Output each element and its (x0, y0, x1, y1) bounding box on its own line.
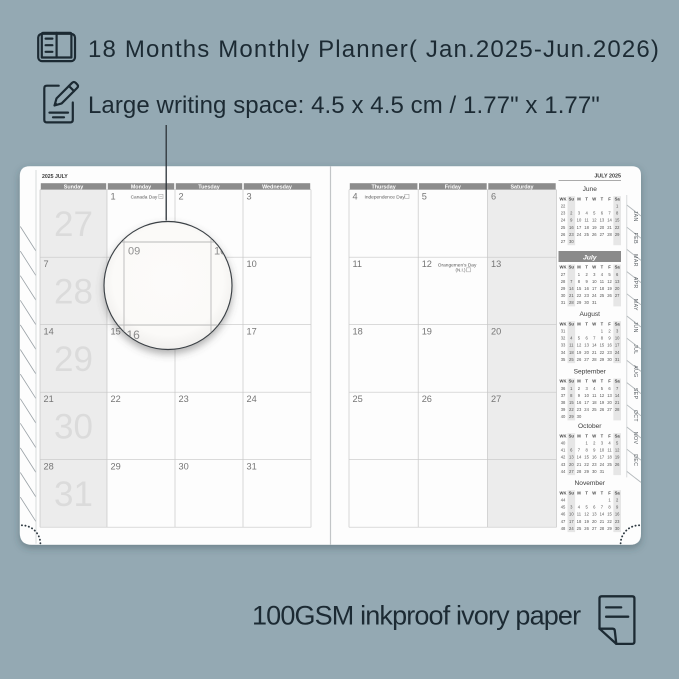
svg-text:31: 31 (561, 329, 566, 334)
svg-text:23: 23 (607, 350, 612, 355)
svg-text:25: 25 (561, 225, 566, 230)
svg-text:25: 25 (607, 462, 612, 467)
svg-text:21: 21 (592, 350, 597, 355)
svg-text:30: 30 (584, 300, 589, 305)
svg-text:15: 15 (600, 343, 605, 348)
svg-text:12: 12 (592, 218, 597, 223)
svg-text:14: 14 (615, 393, 620, 398)
svg-text:26: 26 (561, 232, 566, 237)
svg-text:30: 30 (179, 462, 189, 472)
svg-text:23: 23 (179, 394, 189, 404)
svg-text:23: 23 (615, 519, 620, 524)
svg-text:20: 20 (569, 462, 574, 467)
svg-text:5: 5 (422, 192, 427, 202)
svg-text:13: 13 (569, 455, 574, 460)
svg-text:20: 20 (615, 286, 620, 291)
svg-text:30: 30 (561, 293, 566, 298)
svg-text:12: 12 (607, 279, 612, 284)
svg-text:M: M (577, 265, 581, 270)
svg-text:24: 24 (615, 350, 620, 355)
svg-text:Su: Su (569, 196, 575, 201)
svg-text:24: 24 (584, 407, 589, 412)
svg-text:21: 21 (600, 519, 605, 524)
svg-text:28: 28 (44, 462, 54, 472)
svg-text:Sa: Sa (615, 379, 621, 384)
svg-text:23: 23 (561, 211, 566, 216)
svg-text:44: 44 (561, 498, 566, 503)
svg-text:November: November (575, 480, 606, 487)
svg-text:4: 4 (353, 192, 358, 202)
svg-text:31: 31 (247, 462, 257, 472)
svg-text:36: 36 (561, 386, 566, 391)
svg-text:24: 24 (577, 232, 582, 237)
svg-text:24: 24 (247, 394, 257, 404)
svg-text:12: 12 (615, 448, 620, 453)
svg-text:24: 24 (600, 462, 605, 467)
svg-text:17: 17 (577, 225, 582, 230)
svg-text:25: 25 (592, 407, 597, 412)
svg-text:APR: APR (632, 277, 638, 289)
svg-text:SEP: SEP (632, 388, 638, 400)
svg-text:18: 18 (577, 519, 582, 524)
svg-text:20: 20 (607, 400, 612, 405)
svg-text:W: W (592, 265, 596, 270)
svg-text:29: 29 (54, 340, 93, 379)
svg-text:WK: WK (560, 490, 567, 495)
svg-text:27: 27 (491, 394, 501, 404)
svg-text:46: 46 (561, 512, 566, 517)
svg-text:15: 15 (584, 455, 589, 460)
svg-text:JUN: JUN (632, 321, 638, 332)
svg-text:44: 44 (561, 469, 566, 474)
svg-text:11: 11 (600, 279, 605, 284)
svg-text:October: October (578, 423, 602, 430)
svg-text:M: M (577, 379, 581, 384)
svg-text:22: 22 (607, 519, 612, 524)
svg-text:JUL: JUL (632, 344, 638, 354)
svg-text:25: 25 (577, 526, 582, 531)
svg-text:2: 2 (179, 192, 184, 202)
svg-text:16: 16 (584, 286, 589, 291)
svg-text:18: 18 (607, 455, 612, 460)
svg-text:21: 21 (615, 400, 620, 405)
svg-text:WK: WK (560, 265, 567, 270)
svg-text:31: 31 (615, 357, 620, 362)
svg-text:29: 29 (569, 414, 574, 419)
svg-text:27: 27 (561, 272, 566, 277)
svg-text:20: 20 (584, 350, 589, 355)
svg-text:29: 29 (111, 462, 121, 472)
svg-text:MAR: MAR (632, 254, 638, 267)
svg-text:40: 40 (561, 441, 566, 446)
svg-text:11: 11 (353, 259, 363, 269)
svg-text:25: 25 (584, 232, 589, 237)
svg-text:27: 27 (600, 232, 605, 237)
svg-text:29: 29 (615, 232, 620, 237)
svg-text:12: 12 (584, 512, 589, 517)
svg-text:34: 34 (561, 350, 566, 355)
svg-text:30: 30 (569, 239, 574, 244)
svg-text:26: 26 (584, 526, 589, 531)
svg-text:15: 15 (607, 512, 612, 517)
svg-text:22: 22 (615, 225, 620, 230)
svg-text:June: June (583, 186, 598, 193)
svg-text:17: 17 (600, 455, 605, 460)
svg-text:(N.I.): (N.I.) (456, 268, 466, 273)
svg-text:21: 21 (44, 394, 54, 404)
svg-text:35: 35 (561, 357, 566, 362)
svg-text:22: 22 (569, 407, 574, 412)
svg-text:17: 17 (592, 286, 597, 291)
svg-text:43: 43 (561, 462, 566, 467)
svg-text:27: 27 (607, 407, 612, 412)
svg-text:WK: WK (560, 379, 567, 384)
svg-text:18: 18 (600, 286, 605, 291)
svg-text:28: 28 (561, 279, 566, 284)
svg-text:13: 13 (584, 343, 589, 348)
svg-text:22: 22 (561, 204, 566, 209)
svg-text:W: W (592, 379, 596, 384)
svg-text:July: July (583, 254, 598, 261)
svg-text:28: 28 (615, 407, 620, 412)
svg-text:15: 15 (111, 327, 121, 337)
svg-text:22: 22 (577, 293, 582, 298)
svg-text:30: 30 (577, 414, 582, 419)
svg-text:WK: WK (560, 433, 567, 438)
svg-text:24: 24 (561, 218, 566, 223)
svg-text:14: 14 (592, 343, 597, 348)
svg-text:W: W (592, 196, 596, 201)
svg-text:29: 29 (584, 469, 589, 474)
svg-text:28: 28 (600, 526, 605, 531)
svg-text:14: 14 (577, 455, 582, 460)
svg-text:10: 10 (600, 448, 605, 453)
svg-text:WK: WK (560, 196, 567, 201)
svg-text:17: 17 (584, 400, 589, 405)
svg-text:32: 32 (561, 336, 566, 341)
svg-text:27: 27 (592, 526, 597, 531)
svg-text:28: 28 (592, 357, 597, 362)
svg-text:16: 16 (577, 400, 582, 405)
svg-text:Sa: Sa (615, 196, 621, 201)
svg-text:11: 11 (569, 343, 574, 348)
svg-text:28: 28 (569, 300, 574, 305)
svg-text:30: 30 (607, 357, 612, 362)
svg-text:W: W (592, 490, 596, 495)
svg-text:28: 28 (607, 232, 612, 237)
svg-text:15: 15 (615, 218, 620, 223)
svg-text:14: 14 (44, 327, 54, 337)
svg-text:18: 18 (353, 327, 363, 337)
svg-text:33: 33 (561, 343, 566, 348)
svg-text:19: 19 (615, 455, 620, 460)
svg-text:AUG: AUG (632, 365, 638, 377)
svg-text:M: M (577, 196, 581, 201)
svg-text:W: W (592, 433, 596, 438)
svg-text:28: 28 (54, 272, 93, 311)
svg-text:September: September (574, 368, 607, 375)
svg-text:20: 20 (491, 327, 501, 337)
svg-text:Canada Day: Canada Day (131, 194, 158, 200)
svg-text:14: 14 (607, 218, 612, 223)
svg-text:10: 10 (584, 393, 589, 398)
svg-text:27: 27 (54, 205, 93, 244)
svg-text:20: 20 (592, 519, 597, 524)
svg-text:16: 16 (615, 512, 620, 517)
svg-text:23: 23 (577, 407, 582, 412)
svg-text:100GSM inkproof ivory paper: 100GSM inkproof ivory paper (252, 601, 581, 631)
svg-text:39: 39 (561, 407, 566, 412)
svg-text:13: 13 (600, 218, 605, 223)
svg-text:22: 22 (584, 462, 589, 467)
svg-text:37: 37 (561, 393, 566, 398)
svg-text:31: 31 (600, 469, 605, 474)
svg-text:6: 6 (491, 192, 496, 202)
svg-text:26: 26 (422, 394, 432, 404)
svg-text:19: 19 (422, 327, 432, 337)
svg-text:Sa: Sa (615, 265, 621, 270)
svg-text:17: 17 (615, 343, 620, 348)
svg-text:27: 27 (584, 357, 589, 362)
svg-text:Independence Day: Independence Day (365, 194, 406, 200)
svg-text:7: 7 (44, 259, 49, 269)
svg-text:26: 26 (592, 232, 597, 237)
svg-text:10: 10 (577, 218, 582, 223)
svg-text:27: 27 (615, 293, 620, 298)
svg-text:12: 12 (600, 393, 605, 398)
svg-text:11: 11 (607, 448, 612, 453)
svg-text:30: 30 (615, 526, 620, 531)
svg-text:18: 18 (584, 225, 589, 230)
svg-text:29: 29 (561, 286, 566, 291)
svg-text:16: 16 (569, 225, 574, 230)
svg-text:48: 48 (561, 526, 566, 531)
svg-text:11: 11 (592, 393, 597, 398)
svg-text:26: 26 (615, 462, 620, 467)
svg-text:40: 40 (561, 414, 566, 419)
svg-text:14: 14 (600, 512, 605, 517)
svg-text:Su: Su (569, 433, 575, 438)
svg-text:42: 42 (561, 455, 566, 460)
svg-text:14: 14 (569, 286, 574, 291)
svg-text:19: 19 (592, 225, 597, 230)
svg-text:Sa: Sa (615, 490, 621, 495)
svg-text:27: 27 (561, 239, 566, 244)
svg-text:Sa: Sa (615, 433, 621, 438)
svg-text:18 Months Monthly Planner( Jan: 18 Months Monthly Planner( Jan.2025-Jun.… (88, 36, 660, 63)
svg-text:18: 18 (592, 400, 597, 405)
svg-text:26: 26 (577, 357, 582, 362)
svg-text:30: 30 (54, 407, 93, 446)
svg-text:45: 45 (561, 505, 566, 510)
svg-text:38: 38 (561, 400, 566, 405)
svg-text:19: 19 (584, 519, 589, 524)
svg-text:1: 1 (111, 192, 116, 202)
svg-text:12: 12 (422, 259, 432, 269)
svg-text:19: 19 (577, 350, 582, 355)
svg-text:JAN: JAN (632, 211, 638, 222)
svg-text:Sa: Sa (615, 321, 621, 326)
svg-text:Su: Su (569, 265, 575, 270)
svg-text:WK: WK (560, 321, 567, 326)
svg-text:MAY: MAY (632, 299, 638, 311)
svg-text:21: 21 (607, 225, 612, 230)
svg-text:11: 11 (584, 218, 589, 223)
svg-text:31: 31 (54, 475, 93, 514)
svg-text:August: August (579, 311, 600, 318)
svg-text:11: 11 (577, 512, 582, 517)
svg-text:31: 31 (592, 300, 597, 305)
svg-text:M: M (577, 490, 581, 495)
svg-text:31: 31 (561, 300, 566, 305)
svg-text:W: W (592, 321, 596, 326)
svg-text:23: 23 (569, 232, 574, 237)
svg-text:Large writing space: 4.5 x 4.5: Large writing space: 4.5 x 4.5 cm / 1.77… (88, 92, 600, 119)
svg-text:Su: Su (569, 379, 575, 384)
svg-text:17: 17 (247, 327, 257, 337)
svg-text:29: 29 (607, 526, 612, 531)
svg-text:23: 23 (584, 293, 589, 298)
svg-text:12: 12 (577, 343, 582, 348)
svg-text:23: 23 (592, 462, 597, 467)
svg-text:OCT: OCT (632, 410, 638, 423)
svg-text:15: 15 (569, 400, 574, 405)
svg-text:22: 22 (111, 394, 121, 404)
svg-text:22: 22 (600, 350, 605, 355)
svg-text:24: 24 (592, 293, 597, 298)
svg-text:21: 21 (577, 462, 582, 467)
svg-text:24: 24 (569, 526, 574, 531)
svg-text:29: 29 (577, 300, 582, 305)
svg-text:25: 25 (353, 394, 363, 404)
svg-text:Su: Su (569, 321, 575, 326)
svg-text:16: 16 (607, 343, 612, 348)
svg-text:28: 28 (577, 469, 582, 474)
svg-text:JULY 2025: JULY 2025 (594, 173, 621, 179)
svg-text:16: 16 (592, 455, 597, 460)
svg-text:M: M (577, 321, 581, 326)
svg-text:18: 18 (569, 350, 574, 355)
svg-text:13: 13 (592, 512, 597, 517)
svg-text:DEC: DEC (632, 454, 638, 466)
svg-text:10: 10 (247, 259, 257, 269)
svg-text:20: 20 (600, 225, 605, 230)
svg-text:15: 15 (577, 286, 582, 291)
svg-text:26: 26 (607, 293, 612, 298)
svg-text:13: 13 (607, 393, 612, 398)
svg-text:29: 29 (600, 357, 605, 362)
svg-text:10: 10 (569, 512, 574, 517)
svg-text:09: 09 (128, 245, 140, 257)
svg-text:41: 41 (561, 448, 566, 453)
svg-text:FEB: FEB (632, 233, 638, 244)
svg-text:25: 25 (600, 293, 605, 298)
svg-text:17: 17 (569, 519, 574, 524)
svg-text:NOV: NOV (632, 432, 638, 445)
svg-text:10: 10 (615, 336, 620, 341)
svg-text:47: 47 (561, 519, 566, 524)
svg-text:10: 10 (592, 279, 597, 284)
svg-text:26: 26 (600, 407, 605, 412)
svg-text:3: 3 (247, 192, 252, 202)
svg-text:27: 27 (569, 469, 574, 474)
svg-text:Su: Su (569, 490, 575, 495)
svg-text:13: 13 (615, 279, 620, 284)
svg-text:21: 21 (569, 293, 574, 298)
svg-text:2025 JULY: 2025 JULY (42, 174, 68, 180)
svg-text:19: 19 (607, 286, 612, 291)
svg-text:25: 25 (569, 357, 574, 362)
svg-text:13: 13 (491, 259, 501, 269)
svg-text:M: M (577, 433, 581, 438)
svg-text:30: 30 (592, 469, 597, 474)
svg-text:19: 19 (600, 400, 605, 405)
